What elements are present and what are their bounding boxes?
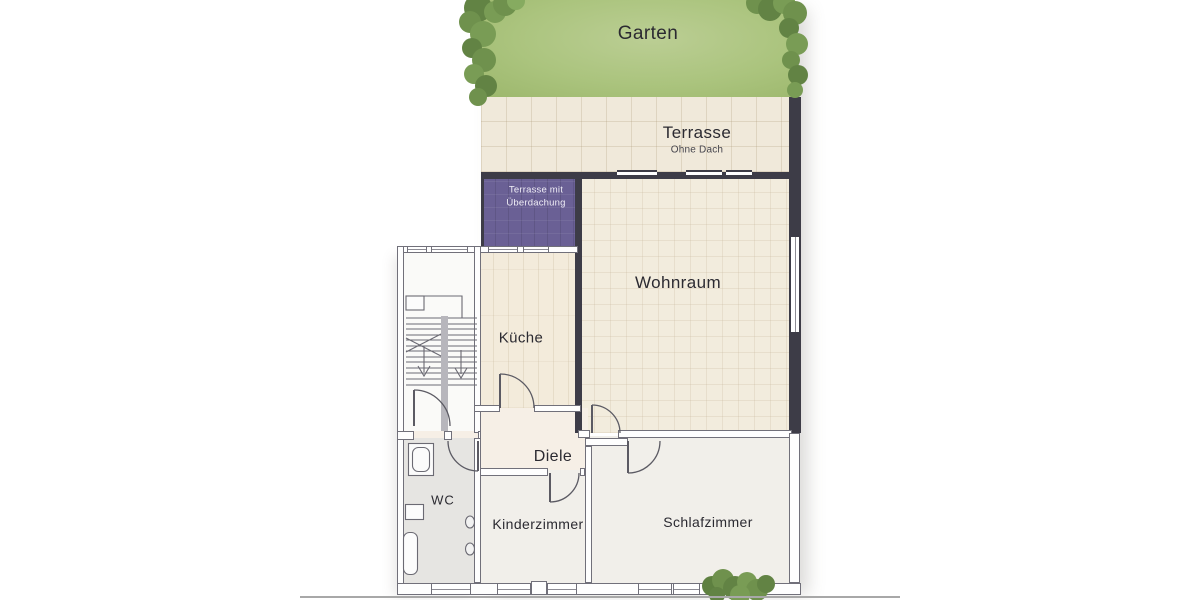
covered-terrace-area [482,172,578,247]
covered-terrace-label-line1: Terrasse mit [509,185,563,196]
window [726,170,752,177]
window [431,246,468,253]
window [686,170,722,177]
bedroom-floor [588,436,795,583]
childrens-room-label: Kinderzimmer [492,516,583,532]
living-room-label: Wohnraum [635,273,721,293]
bedroom-east-wall [789,433,800,583]
wc-floor [401,438,477,583]
floorplan-canvas: Garten Terrasse Ohne Dach Terrasse mit Ü… [0,0,1200,600]
window [673,583,700,595]
window [523,246,549,253]
window [547,583,577,595]
window [431,583,471,595]
stairwell-floor [401,250,478,435]
bedroom-north-wall [585,438,628,446]
terrace-sublabel: Ohne Dach [671,145,723,156]
east-wall-upper [789,97,801,237]
childrens-north-wall-w [474,468,548,476]
wc-label: WC [431,493,455,508]
terrace-label: Terrasse [663,123,731,143]
window [638,583,672,595]
corridor-wall-w [397,431,414,440]
window [497,583,531,595]
living-room-floor [578,176,795,433]
wc-childrens-divider [474,438,481,583]
window-pier [531,581,547,595]
kitchen-label: Küche [499,330,544,347]
living-south-wall-e [618,430,792,438]
living-room-west-wall [575,172,582,433]
west-outer-wall [397,246,404,590]
terrace-area [481,97,795,172]
site-ground-line [300,596,900,598]
north-wall [482,172,801,179]
window [407,246,427,253]
window [488,246,518,253]
bedroom-label: Schlafzimmer [663,514,753,530]
kitchen-south-wall-e [534,405,581,412]
covered-terrace-label-line2: Überdachung [506,198,565,209]
childrens-bedroom-divider [585,446,592,583]
window [789,237,801,332]
window [617,170,657,177]
garden-area [477,0,795,97]
covered-terrace-west-edge [481,172,484,247]
living-south-wall-w [578,430,590,438]
corridor-wall-pier [444,431,452,440]
east-wall-lower [789,332,801,433]
hallway-label: Diele [534,448,572,466]
kitchen-south-wall-w [474,405,500,412]
garden-label: Garten [618,23,679,45]
